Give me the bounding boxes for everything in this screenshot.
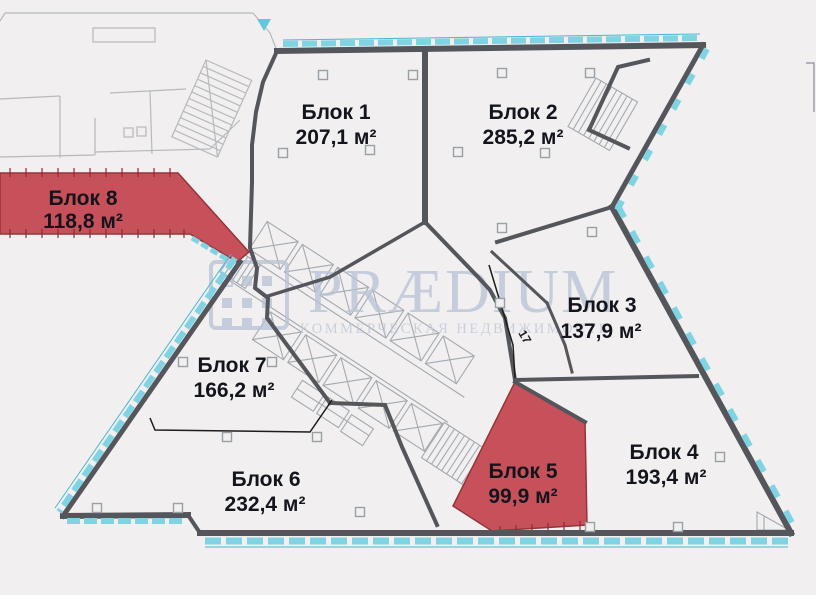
block8-area: 118,8 м² xyxy=(43,210,123,233)
block1-name: Блок 1 xyxy=(301,101,370,124)
block5-name: Блок 5 xyxy=(488,460,557,483)
block2-area: 285,2 м² xyxy=(483,126,564,149)
block6-name: Блок 6 xyxy=(231,468,300,491)
block4-name: Блок 4 xyxy=(629,441,698,464)
block4-area: 193,4 м² xyxy=(626,466,707,489)
block1-area: 207,1 м² xyxy=(296,126,377,149)
block7-area: 166,2 м² xyxy=(194,379,275,402)
block5-area: 99,9 м² xyxy=(488,485,557,508)
block7-name: Блок 7 xyxy=(197,354,266,377)
floor-plan: PRÆDIUM КОММЕРЧЕСКАЯ НЕДВИЖИМОСТЬ xyxy=(0,0,816,595)
block6-area: 232,4 м² xyxy=(225,493,306,516)
block8-name: Блок 8 xyxy=(48,187,117,210)
block3-name: Блок 3 xyxy=(567,294,636,317)
block3-area: 137,9 м² xyxy=(561,320,642,343)
floor-plan-page: PRÆDIUM КОММЕРЧЕСКАЯ НЕДВИЖИМОСТЬ xyxy=(0,0,816,595)
block2-name: Блок 2 xyxy=(488,101,557,124)
